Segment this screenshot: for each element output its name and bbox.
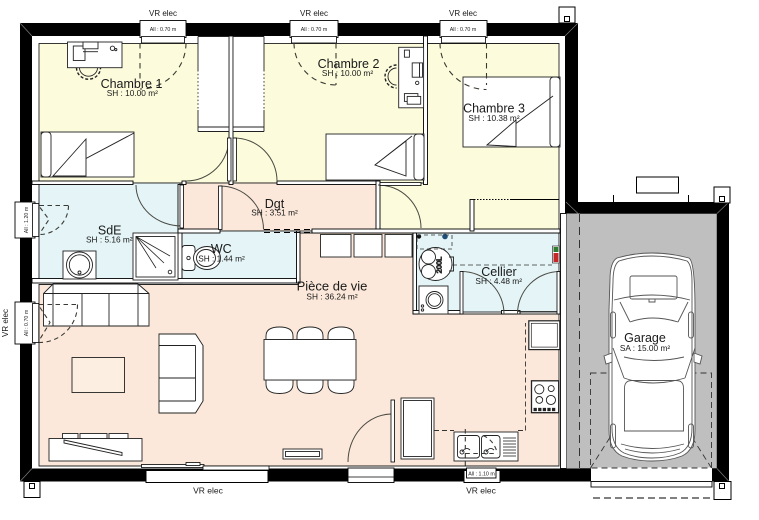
svg-text:VR elec: VR elec bbox=[466, 486, 497, 496]
svg-text:VR elec: VR elec bbox=[449, 9, 477, 18]
svg-text:200L: 200L bbox=[435, 257, 444, 274]
svg-text:SH : 1.44 m²: SH : 1.44 m² bbox=[198, 254, 245, 264]
svg-text:VR elec: VR elec bbox=[193, 486, 224, 496]
svg-text:All : 1.20 m: All : 1.20 m bbox=[24, 206, 30, 233]
svg-text:All : 0.70 m: All : 0.70 m bbox=[24, 309, 30, 336]
svg-text:SH : 4.48 m²: SH : 4.48 m² bbox=[475, 276, 522, 286]
svg-text:SH : 10.38 m²: SH : 10.38 m² bbox=[468, 113, 519, 123]
svg-text:SH : 36.24 m²: SH : 36.24 m² bbox=[306, 292, 357, 302]
svg-text:SA : 15.00 m²: SA : 15.00 m² bbox=[620, 343, 671, 353]
svg-text:VR elec: VR elec bbox=[300, 9, 328, 18]
svg-text:SH : 10.00 m²: SH : 10.00 m² bbox=[107, 88, 158, 98]
svg-text:SH : 10.00 m²: SH : 10.00 m² bbox=[322, 68, 373, 78]
svg-text:VR elec: VR elec bbox=[149, 9, 177, 18]
svg-text:SH : 5.16 m²: SH : 5.16 m² bbox=[86, 235, 133, 245]
svg-text:All : 0.70 m: All : 0.70 m bbox=[450, 27, 477, 33]
svg-text:All : 0.70 m: All : 0.70 m bbox=[301, 27, 328, 33]
svg-text:SH : 3.51 m²: SH : 3.51 m² bbox=[251, 207, 298, 217]
svg-text:VR elec: VR elec bbox=[1, 309, 10, 337]
svg-text:All : 0.70 m: All : 0.70 m bbox=[150, 27, 177, 33]
svg-text:All : 1.10 m: All : 1.10 m bbox=[468, 472, 495, 478]
